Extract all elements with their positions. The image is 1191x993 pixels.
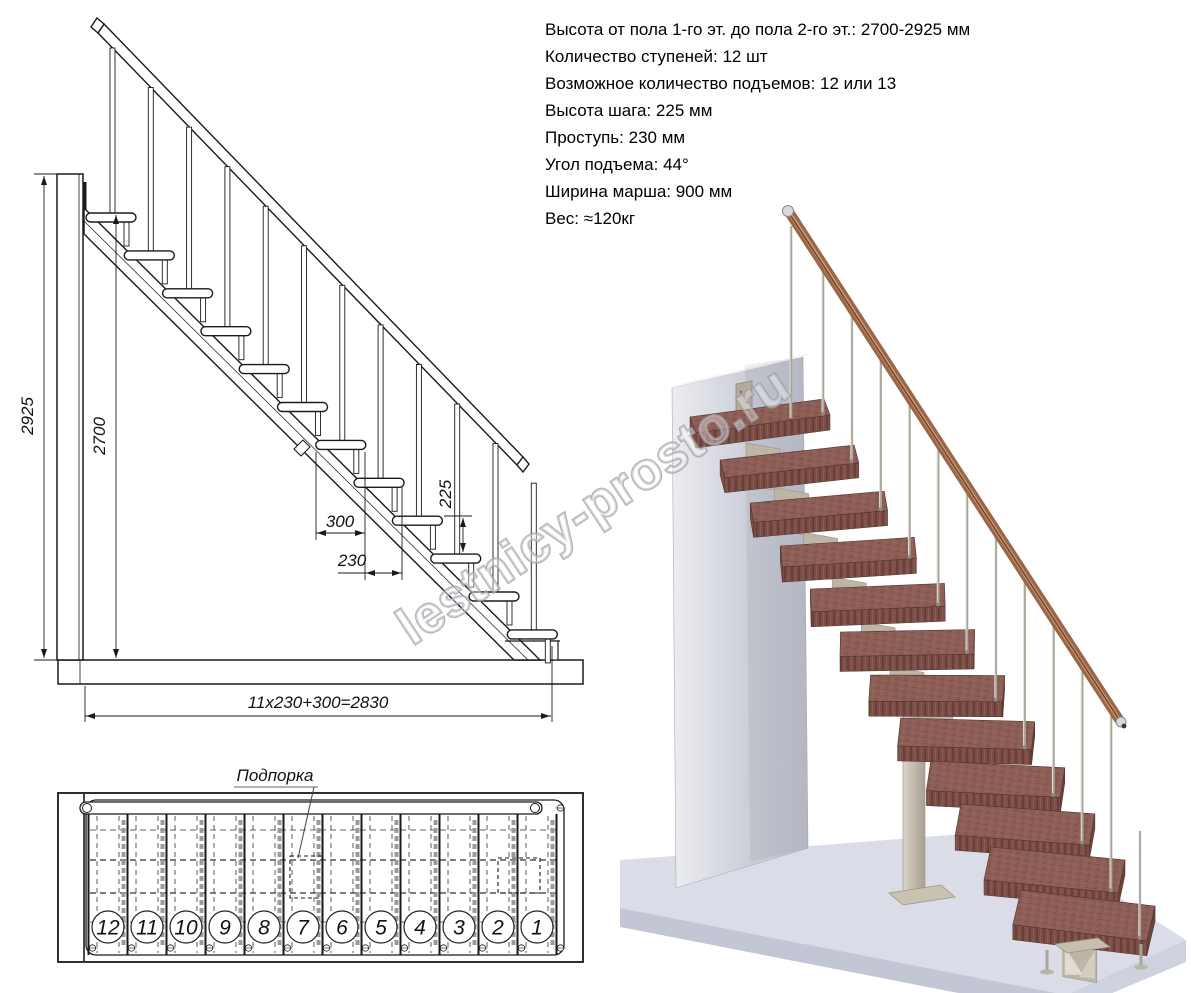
spec-line-width: Ширина марша: 900 мм bbox=[545, 178, 1145, 205]
spec-line-angle: Угол подъема: 44° bbox=[545, 151, 1145, 178]
baluster-side bbox=[455, 404, 460, 554]
baluster-joint bbox=[994, 698, 998, 702]
baluster-side bbox=[263, 206, 268, 364]
spec-line-rise-count: Возможное количество подъемов: 12 или 13 bbox=[545, 70, 1145, 97]
dimension-arrow bbox=[41, 649, 47, 658]
step-tread-side bbox=[507, 630, 557, 639]
baluster-joint bbox=[879, 507, 883, 511]
dimension-arrow bbox=[366, 570, 375, 576]
dim-total-run: 11x230+300=2830 bbox=[248, 693, 389, 712]
staircase-spec-sheet: 2925 2700 300 230 225 11x230+300=2830 12… bbox=[0, 0, 1191, 993]
baluster-joint bbox=[1138, 936, 1142, 940]
floor-band bbox=[58, 660, 583, 684]
dimension-arrow bbox=[113, 649, 119, 658]
step-sleeve bbox=[316, 412, 321, 436]
plan-step-number: 4 bbox=[414, 917, 426, 940]
baluster-joint bbox=[1023, 745, 1027, 749]
baluster-side bbox=[378, 325, 383, 478]
baluster-joint bbox=[1109, 888, 1113, 892]
plan-step-number: 10 bbox=[174, 917, 198, 940]
step-tread-side bbox=[392, 516, 442, 525]
baluster-side bbox=[302, 246, 307, 403]
plan-step-number: 7 bbox=[297, 917, 310, 940]
step-sleeve bbox=[162, 260, 167, 284]
plan-step-number: 11 bbox=[136, 917, 158, 940]
dimension-arrow bbox=[541, 713, 550, 719]
plan-step-number: 8 bbox=[258, 917, 270, 940]
baluster-joint bbox=[1051, 793, 1055, 797]
spec-line-going: Проступь: 230 мм bbox=[545, 124, 1145, 151]
spec-line-step-count: Количество ступеней: 12 шт bbox=[545, 43, 1145, 70]
baluster-side bbox=[110, 48, 115, 213]
plan-step-number: 1 bbox=[531, 917, 543, 940]
render-3d bbox=[620, 206, 1186, 993]
spec-block: Высота от пола 1-го эт. до пола 2-го эт.… bbox=[545, 16, 1145, 232]
spec-line-rise-height: Высота шага: 225 мм bbox=[545, 97, 1145, 124]
dim-riser: 225 bbox=[436, 479, 455, 509]
step-sleeve bbox=[545, 639, 550, 663]
plan-handrail bbox=[80, 802, 542, 814]
step-sleeve bbox=[124, 222, 129, 246]
step-tread-side bbox=[201, 327, 251, 336]
spec-line-height-range: Высота от пола 1-го эт. до пола 2-го эт.… bbox=[545, 16, 1145, 43]
dim-height-floor: 2700 bbox=[90, 417, 109, 456]
baluster-joint bbox=[1080, 841, 1084, 845]
tread-top-face bbox=[926, 761, 1064, 797]
baluster-side bbox=[187, 127, 192, 289]
handrail-end-tip bbox=[1122, 724, 1127, 729]
handrail-side bbox=[98, 24, 523, 465]
dimension-arrow bbox=[392, 570, 401, 576]
side-view-drawing: 2925 2700 300 230 225 11x230+300=2830 bbox=[18, 18, 583, 722]
step-tread-side bbox=[239, 365, 289, 374]
dimension-arrow bbox=[41, 176, 47, 185]
tread-front-face bbox=[840, 654, 974, 672]
baluster-side bbox=[416, 364, 421, 516]
plan-step-number: 9 bbox=[219, 917, 231, 940]
step-sleeve bbox=[392, 487, 397, 511]
step-tread-side bbox=[124, 251, 174, 260]
step-sleeve bbox=[354, 449, 359, 473]
baluster-joint bbox=[850, 460, 854, 464]
dim-tread-depth: 300 bbox=[326, 512, 355, 531]
plan-step-number: 5 bbox=[375, 917, 387, 940]
baluster-side bbox=[225, 167, 230, 327]
step-tread-side bbox=[163, 289, 213, 298]
step-tread-side bbox=[278, 403, 328, 412]
step-tread-side bbox=[354, 478, 404, 487]
step-tread-side bbox=[316, 440, 366, 449]
leg-foot bbox=[1040, 970, 1054, 975]
step-sleeve bbox=[430, 525, 435, 549]
step-sleeve bbox=[507, 601, 512, 625]
dim-height-overall: 2925 bbox=[18, 397, 37, 436]
dimension-arrow bbox=[460, 543, 466, 552]
plan-step-number: 2 bbox=[491, 917, 504, 940]
baluster-joint bbox=[821, 412, 825, 416]
plan-step-number: 6 bbox=[336, 917, 348, 940]
plan-step-number: 3 bbox=[453, 917, 465, 940]
tread-top-face bbox=[869, 675, 1005, 702]
dimension-arrow bbox=[355, 530, 364, 536]
baluster-side bbox=[148, 88, 153, 251]
step-tread-side bbox=[86, 213, 136, 222]
step-sleeve bbox=[277, 374, 282, 398]
plan-step-number: 12 bbox=[96, 917, 120, 940]
leg-foot bbox=[1134, 965, 1148, 970]
dimension-arrow bbox=[86, 713, 95, 719]
dim-going: 230 bbox=[337, 551, 367, 570]
plan-view-drawing: 121110987654321 Подпорка bbox=[58, 766, 583, 962]
spec-line-weight: Вес: ≈120кг bbox=[545, 205, 1145, 232]
step-sleeve bbox=[201, 298, 206, 322]
tread-front-face bbox=[869, 701, 1003, 717]
dimension-arrow bbox=[317, 530, 326, 536]
tread-top-face bbox=[840, 630, 975, 657]
step-sleeve bbox=[239, 336, 244, 360]
tread-top-face bbox=[898, 718, 1035, 750]
baluster-joint bbox=[965, 650, 969, 654]
support-label: Подпорка bbox=[237, 766, 314, 785]
baluster-joint bbox=[907, 555, 911, 559]
dimension-arrow bbox=[460, 518, 466, 527]
baluster-joint bbox=[936, 602, 940, 606]
baluster-side bbox=[340, 285, 345, 440]
